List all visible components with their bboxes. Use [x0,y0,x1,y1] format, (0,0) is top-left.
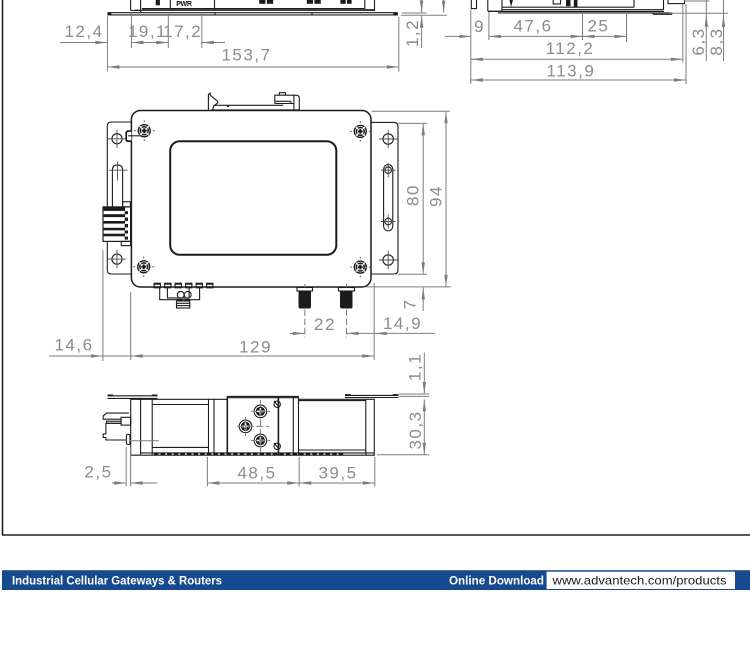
svg-text:9: 9 [474,17,485,36]
svg-text:2,5: 2,5 [84,463,112,482]
svg-text:17,2: 17,2 [163,22,202,41]
svg-text:113,9: 113,9 [547,62,596,81]
svg-text:6,3: 6,3 [689,27,708,55]
svg-text:7: 7 [401,299,420,310]
svg-text:94: 94 [427,185,446,207]
svg-text:14,9: 14,9 [383,314,422,333]
svg-text:48,5: 48,5 [237,464,276,483]
svg-text:Online Download: Online Download [449,574,544,588]
svg-text:129: 129 [239,338,272,357]
svg-text:www.advantech.com/products: www.advantech.com/products [551,574,726,588]
svg-text:Industrial Cellular Gateways &: Industrial Cellular Gateways & Routers [12,574,222,588]
svg-text:22: 22 [314,315,336,334]
svg-text:30,3: 30,3 [406,410,425,449]
svg-text:1,1: 1,1 [406,353,425,381]
svg-text:153,7: 153,7 [221,46,271,65]
svg-text:14,6: 14,6 [54,336,93,355]
svg-text:112,2: 112,2 [546,39,595,58]
svg-text:8,3: 8,3 [707,27,726,55]
svg-text:47,6: 47,6 [513,17,552,36]
svg-text:25: 25 [587,17,609,36]
svg-text:PWR: PWR [176,1,192,8]
svg-text:19,1: 19,1 [128,22,167,41]
svg-text:12,4: 12,4 [64,22,103,41]
svg-text:39,5: 39,5 [318,464,357,483]
svg-text:1,2: 1,2 [403,19,422,47]
svg-text:80: 80 [404,184,423,206]
